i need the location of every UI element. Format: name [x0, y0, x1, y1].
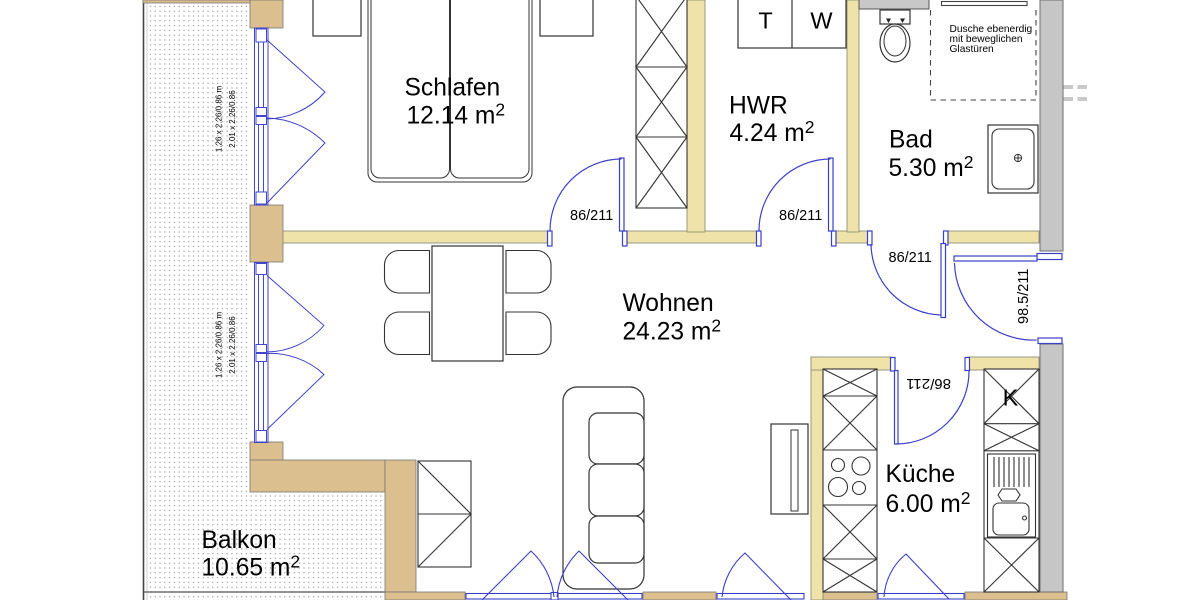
svg-text:86/211: 86/211	[570, 208, 613, 224]
svg-text:HWR: HWR	[729, 93, 788, 120]
svg-text:Wohnen: Wohnen	[623, 290, 714, 317]
svg-text:1.26 x 2.26/0.86 m: 1.26 x 2.26/0.86 m	[215, 86, 224, 153]
svg-text:5.30 m2: 5.30 m2	[889, 152, 974, 182]
svg-text:4.24 m2: 4.24 m2	[730, 117, 815, 147]
svg-text:6.00 m2: 6.00 m2	[886, 488, 971, 518]
svg-text:Schlafen: Schlafen	[405, 75, 501, 102]
svg-text:10.65 m2: 10.65 m2	[202, 552, 301, 582]
svg-text:98.5/211: 98.5/211	[1016, 269, 1032, 324]
svg-text:86/211: 86/211	[906, 375, 951, 392]
svg-text:T: T	[758, 8, 772, 34]
svg-text:24.23 m2: 24.23 m2	[623, 316, 722, 346]
svg-text:Küche: Küche	[886, 461, 956, 488]
svg-text:86/211: 86/211	[779, 208, 822, 224]
svg-text:1.26 x 2.26/0.86 m: 1.26 x 2.26/0.86 m	[215, 312, 224, 379]
svg-text:2.01 x 2.26/0.86: 2.01 x 2.26/0.86	[228, 316, 237, 374]
svg-text:12.14 m2: 12.14 m2	[407, 100, 506, 130]
svg-text:W: W	[810, 8, 833, 34]
svg-text:Glastüren: Glastüren	[950, 44, 994, 55]
svg-text:K: K	[1003, 385, 1019, 411]
svg-text:Bad: Bad	[889, 127, 933, 154]
svg-text:86/211: 86/211	[889, 250, 932, 266]
svg-text:2.01 x 2.26/0.86: 2.01 x 2.26/0.86	[228, 90, 237, 148]
svg-text:Balkon: Balkon	[202, 527, 277, 554]
